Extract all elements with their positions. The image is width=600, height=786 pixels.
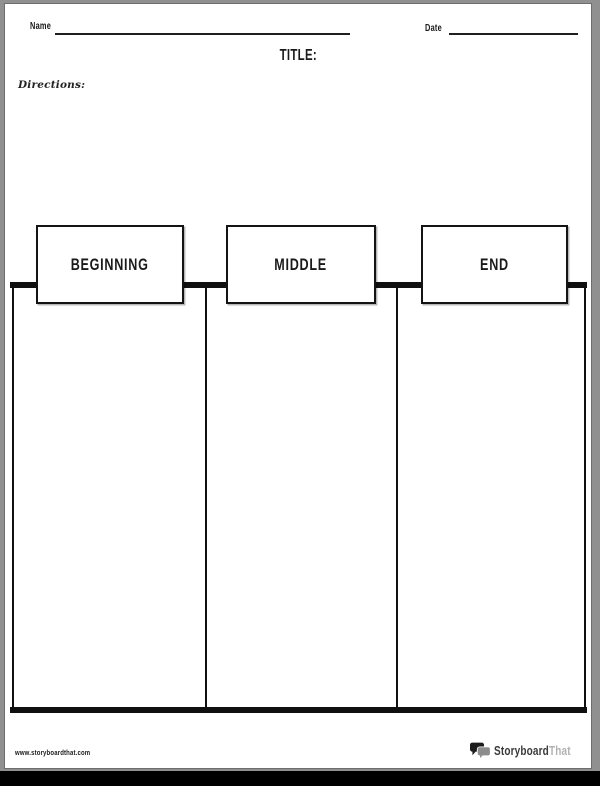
date-line[interactable] xyxy=(449,33,578,35)
column-header-label: MIDDLE xyxy=(275,255,328,275)
pdf-preview-screen: Name Date TITLE: Directions: BEGINNING M… xyxy=(0,0,600,786)
column-header-middle: MIDDLE xyxy=(226,225,376,304)
column-header-beginning: BEGINNING xyxy=(36,225,184,304)
brand-name-secondary: That xyxy=(549,744,571,758)
name-line[interactable] xyxy=(55,33,350,35)
column-header-label: END xyxy=(480,255,509,275)
date-label: Date xyxy=(425,23,448,34)
brand-name: StoryboardThat xyxy=(494,744,571,758)
speech-bubbles-icon xyxy=(470,742,491,760)
name-label: Name xyxy=(30,21,58,32)
end-column-area[interactable] xyxy=(398,288,584,707)
column-border-right xyxy=(584,288,586,707)
brand-name-primary: Storyboard xyxy=(494,744,549,758)
beginning-column-area[interactable] xyxy=(14,288,205,707)
middle-column-area[interactable] xyxy=(207,288,396,707)
directions-label: Directions: xyxy=(18,79,85,91)
website-url: www.storyboardthat.com xyxy=(15,748,109,757)
brand-logo: StoryboardThat xyxy=(470,741,590,760)
column-header-end: END xyxy=(421,225,568,304)
organizer-bottom-border xyxy=(10,707,587,713)
page-title: TITLE: xyxy=(4,49,592,63)
column-header-label: BEGINNING xyxy=(71,255,149,275)
